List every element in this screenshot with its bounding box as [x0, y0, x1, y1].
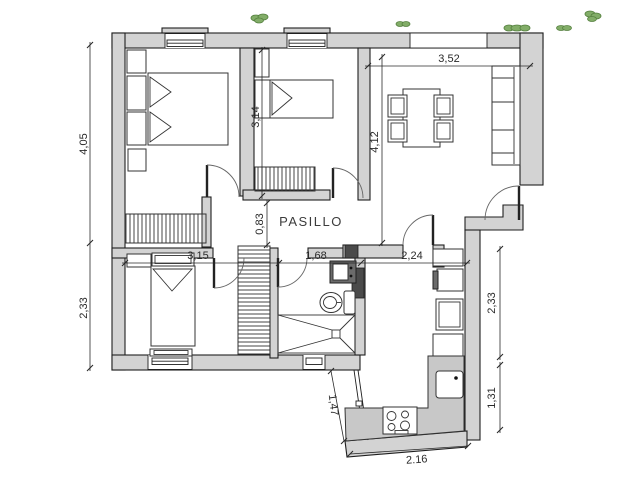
- oven: [436, 299, 463, 330]
- dim-bedroom3-width-label: 3,15: [187, 250, 208, 262]
- wall-bedroom2-living: [358, 48, 370, 200]
- dining-chair: [434, 95, 453, 117]
- window-sill-exterior-1: [162, 28, 208, 33]
- dining-chair: [434, 120, 453, 142]
- dim-bathroom-width-label: 1,68: [305, 250, 326, 262]
- plant: [251, 14, 268, 23]
- hallway-label: PASILLO: [279, 214, 343, 229]
- dim-kitchen-width-label: 2,24: [401, 250, 422, 262]
- hallway-wardrobe: [238, 246, 270, 354]
- wardrobe-master: [125, 214, 206, 243]
- bedroom3-group: [127, 253, 195, 356]
- washing-machine: [433, 269, 463, 291]
- window-bathroom-vent: [303, 355, 325, 370]
- closet-shelf: [127, 254, 151, 267]
- bathroom-group: [278, 261, 356, 353]
- floor-plan-svg: 4,05 2,33 3,52 3,14 4,12 0,83 3,15 1,68 …: [0, 0, 640, 480]
- door-master: [207, 165, 239, 197]
- window-bedroom3: [148, 355, 192, 370]
- kitchen-wall-right: [465, 230, 480, 440]
- nightstand: [128, 149, 146, 171]
- dim-kitchen-right-lower-label: 1,31: [486, 387, 498, 408]
- shower-tray: [278, 315, 355, 353]
- single-bed-2: [270, 80, 333, 118]
- entrance-step-wall: [465, 205, 523, 230]
- dim-top-living-label: 3,52: [438, 53, 459, 65]
- floor-plan-page: 4,05 2,33 3,52 3,14 4,12 0,83 3,15 1,68 …: [0, 0, 640, 480]
- window-bedroom2: [287, 33, 327, 48]
- window-master: [165, 33, 205, 48]
- master-bedroom-group: [127, 50, 228, 171]
- radiator: [150, 349, 192, 356]
- wardrobe-bedroom2: [255, 167, 315, 191]
- dim-left-bottom-label: 2,33: [78, 297, 90, 318]
- window-living: [410, 33, 487, 48]
- plant: [504, 25, 530, 31]
- stove: [383, 407, 417, 434]
- headboard-panel: [127, 76, 146, 110]
- dim-left-top-label: 4,05: [78, 133, 90, 154]
- washbasin: [330, 261, 356, 283]
- toilet: [320, 291, 355, 314]
- dim-bedroom2-height-label: 3,14: [250, 106, 262, 127]
- door-bathroom: [278, 258, 307, 287]
- door-kitchen: [403, 215, 433, 245]
- fridge: [433, 249, 463, 266]
- single-bed-3: [151, 266, 195, 346]
- living-room-group: [388, 66, 520, 165]
- kitchen-sink: [436, 371, 463, 398]
- base-cabinet: [433, 334, 463, 356]
- dim-kitchen-bottom-label: 2.16: [406, 453, 428, 466]
- dim-kitchen-right-upper-label: 2,33: [486, 292, 498, 313]
- structural-pier-1: [345, 245, 358, 258]
- bedroom2-group: [255, 49, 333, 118]
- sofa: [492, 66, 520, 165]
- dim-hallway-width-label: 0,83: [254, 213, 266, 234]
- plant: [585, 11, 601, 22]
- dining-chair: [388, 120, 407, 142]
- exterior-wall-right-upper: [520, 33, 543, 185]
- window-sill-exterior-2: [284, 28, 330, 33]
- plant: [557, 26, 572, 31]
- dining-chair: [388, 95, 407, 117]
- plant: [396, 22, 410, 27]
- headboard-panel: [127, 112, 146, 145]
- dim-kitchen-glazing-label: 1,47: [326, 394, 341, 417]
- exterior-wall-left: [112, 33, 125, 370]
- closet-cabinet: [127, 50, 146, 73]
- dim-living-height-label: 4,12: [369, 131, 381, 152]
